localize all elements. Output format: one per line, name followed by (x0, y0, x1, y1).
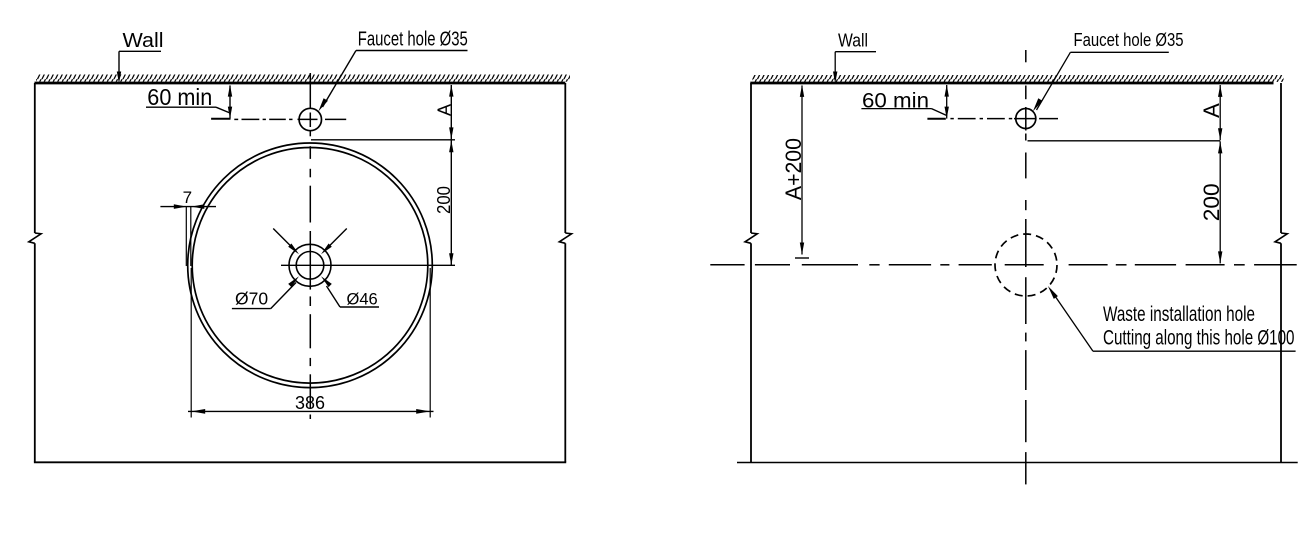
svg-text:A: A (1199, 103, 1224, 118)
svg-text:Ø46: Ø46 (347, 291, 378, 309)
svg-text:Wall: Wall (838, 30, 868, 50)
svg-text:386: 386 (295, 393, 325, 413)
svg-text:60 min: 60 min (147, 84, 212, 110)
svg-text:Ø70: Ø70 (235, 289, 268, 309)
svg-text:Cutting along this hole Ø100: Cutting along this hole Ø100 (1103, 326, 1295, 350)
svg-text:200: 200 (1199, 183, 1224, 221)
svg-text:200: 200 (434, 186, 454, 214)
svg-text:Faucet hole Ø35: Faucet hole Ø35 (358, 29, 468, 51)
svg-text:7: 7 (183, 188, 192, 207)
svg-text:Faucet hole Ø35: Faucet hole Ø35 (1074, 30, 1184, 50)
svg-text:Waste installation hole: Waste installation hole (1103, 302, 1255, 326)
svg-text:A+200: A+200 (781, 138, 806, 200)
svg-text:A: A (434, 104, 454, 116)
svg-text:Wall: Wall (123, 30, 164, 52)
